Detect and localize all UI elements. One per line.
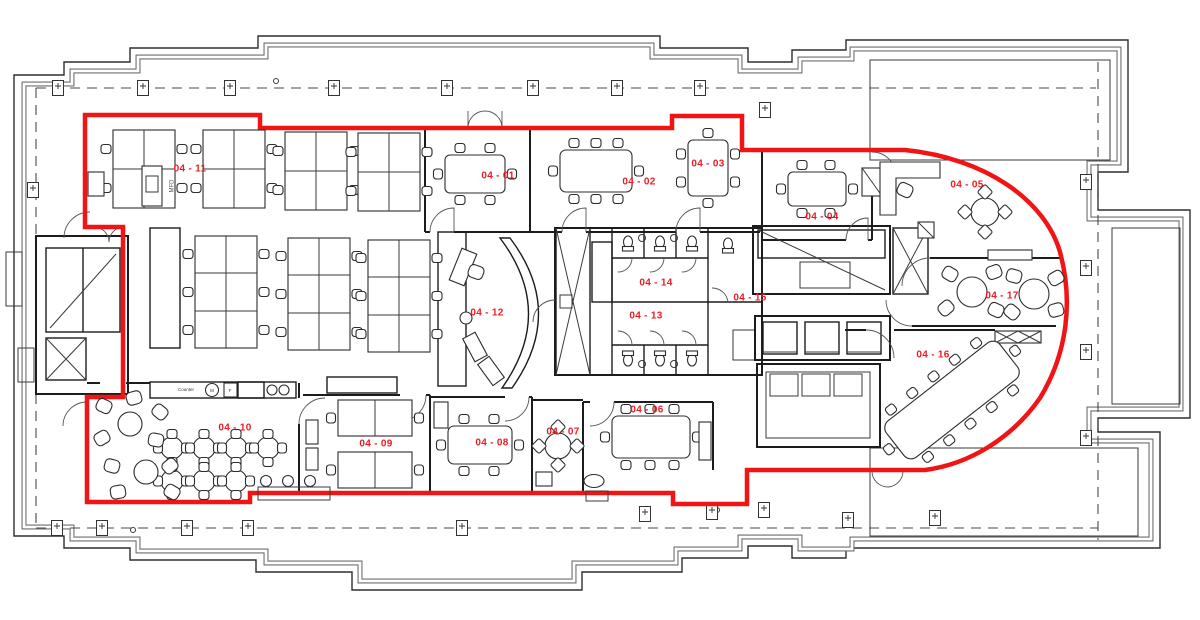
room-label-04-12: 04 - 12 [470,308,503,319]
room-label-04-04: 04 - 04 [805,212,838,223]
room-label-04-15: 04 - 15 [733,293,766,304]
room-label-04-02: 04 - 02 [622,177,655,188]
fridge-label: F [229,388,232,393]
room-label-04-03: 04 - 03 [691,159,724,170]
counter-label: Counter [178,387,195,392]
room-label-04-11: 04 - 11 [174,164,207,175]
floor-plan-canvas: 04 - 01 04 - 02 04 - 03 04 - 04 04 - 05 … [0,0,1200,620]
mfd-printer [142,166,162,206]
room-label-04-09: 04 - 09 [359,439,392,450]
room-label-04-08: 04 - 08 [475,438,508,449]
room-label-04-16: 04 - 16 [916,350,949,361]
floor-plan: 04 - 01 04 - 02 04 - 03 04 - 04 04 - 05 … [0,0,1200,620]
room-label-04-06: 04 - 06 [630,405,663,416]
room-label-04-07: 04 - 07 [546,427,579,438]
room-label-04-17: 04 - 17 [985,291,1018,302]
room-label-04-05: 04 - 05 [950,180,983,191]
microwave-label: M [210,388,214,393]
room-label-04-13: 04 - 13 [629,311,662,322]
room-label-04-10: 04 - 10 [218,423,251,434]
room-label-04-14: 04 - 14 [639,278,672,289]
mfd-label: MFD [170,179,176,193]
room-label-04-01: 04 - 01 [481,171,514,182]
